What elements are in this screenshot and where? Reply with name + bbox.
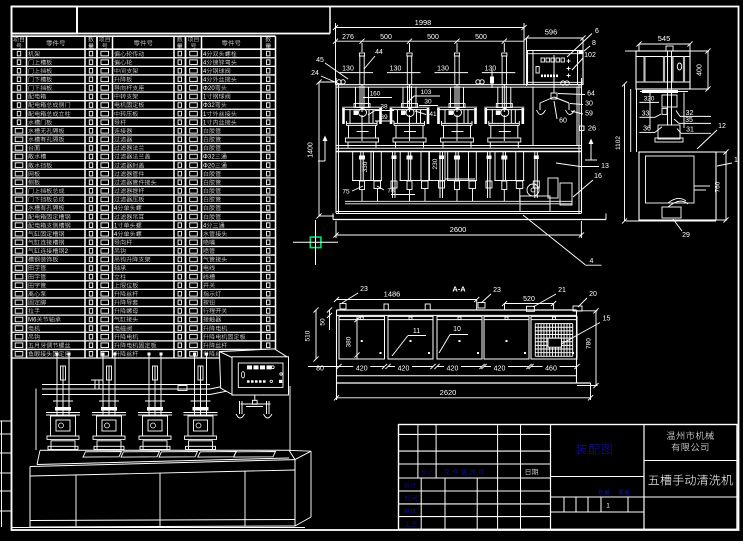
svg-text:59: 59 xyxy=(585,111,593,118)
svg-text:64: 64 xyxy=(587,91,595,98)
svg-text:780: 780 xyxy=(586,338,593,349)
svg-text:103: 103 xyxy=(421,89,432,96)
svg-text:2600: 2600 xyxy=(450,225,467,234)
svg-text:460: 460 xyxy=(545,366,557,373)
svg-text:校阅: 校阅 xyxy=(405,493,418,503)
svg-text:重量: 重量 xyxy=(618,488,630,497)
svg-text:量: 量 xyxy=(265,41,271,50)
svg-text:24: 24 xyxy=(311,70,319,77)
svg-text:标记: 标记 xyxy=(421,467,433,476)
svg-text:230: 230 xyxy=(432,158,439,169)
svg-text:78: 78 xyxy=(387,188,395,195)
svg-text:320: 320 xyxy=(644,96,655,103)
svg-text:号: 号 xyxy=(16,41,22,50)
svg-text:号: 号 xyxy=(102,41,108,50)
svg-text:33: 33 xyxy=(642,111,650,118)
svg-text:330: 330 xyxy=(362,161,369,172)
svg-text:80: 80 xyxy=(316,366,324,373)
svg-text:审核: 审核 xyxy=(404,506,418,516)
svg-text:23: 23 xyxy=(493,287,501,294)
svg-text:号: 号 xyxy=(190,41,196,50)
svg-text:545: 545 xyxy=(658,34,671,43)
svg-text:38: 38 xyxy=(380,104,388,111)
svg-text:31: 31 xyxy=(686,127,694,134)
svg-text:23: 23 xyxy=(360,286,368,293)
svg-text:五槽手动清洗机: 五槽手动清洗机 xyxy=(648,472,733,489)
svg-text:420: 420 xyxy=(494,366,506,373)
svg-text:2620: 2620 xyxy=(440,388,457,397)
svg-text:500: 500 xyxy=(380,34,392,41)
svg-text:零件号: 零件号 xyxy=(46,38,66,48)
svg-text:A-A: A-A xyxy=(452,285,466,294)
svg-text:鱼眼接头固定座: 鱼眼接头固定座 xyxy=(28,349,71,358)
svg-text:420: 420 xyxy=(447,366,459,373)
svg-text:500: 500 xyxy=(427,34,439,41)
svg-text:130: 130 xyxy=(342,66,354,73)
svg-text:500: 500 xyxy=(475,34,487,41)
svg-text:276: 276 xyxy=(342,34,354,41)
svg-text:15: 15 xyxy=(603,316,611,323)
svg-text:数量: 数量 xyxy=(598,488,610,497)
svg-text:升降丝杆: 升降丝杆 xyxy=(114,349,138,358)
svg-text:4: 4 xyxy=(590,258,594,265)
svg-text:130: 130 xyxy=(437,66,449,73)
svg-text:1: 1 xyxy=(734,157,738,164)
svg-text:26: 26 xyxy=(588,124,596,133)
svg-text:50: 50 xyxy=(320,318,327,326)
svg-text:420: 420 xyxy=(398,366,410,373)
svg-text:760: 760 xyxy=(715,181,722,192)
svg-text:102: 102 xyxy=(584,52,596,59)
svg-text:130: 130 xyxy=(484,66,496,73)
svg-text:10: 10 xyxy=(453,326,461,333)
svg-text:零件号: 零件号 xyxy=(134,38,154,48)
svg-text:596: 596 xyxy=(545,28,558,37)
svg-text:8: 8 xyxy=(592,40,596,47)
svg-text:44: 44 xyxy=(375,49,383,56)
svg-text:45: 45 xyxy=(316,57,324,64)
svg-text:39: 39 xyxy=(380,114,388,121)
svg-text:36: 36 xyxy=(643,126,651,133)
svg-text:11: 11 xyxy=(413,328,420,335)
svg-text:420: 420 xyxy=(356,366,368,373)
svg-text:量: 量 xyxy=(177,41,183,50)
svg-text:30: 30 xyxy=(585,101,593,108)
svg-text:20: 20 xyxy=(589,291,597,298)
svg-text:零件号: 零件号 xyxy=(222,38,242,48)
svg-text:21: 21 xyxy=(558,287,566,294)
svg-text:1102: 1102 xyxy=(615,136,622,150)
svg-text:75: 75 xyxy=(342,189,350,196)
svg-text:29: 29 xyxy=(682,232,690,239)
svg-text:日期: 日期 xyxy=(525,468,539,478)
svg-text:1998: 1998 xyxy=(415,18,432,27)
svg-text:130: 130 xyxy=(390,66,402,73)
svg-text:160: 160 xyxy=(370,91,381,98)
svg-text:41: 41 xyxy=(429,111,437,118)
svg-text:工艺: 工艺 xyxy=(405,519,418,529)
svg-text:量: 量 xyxy=(88,41,94,50)
svg-text:1400: 1400 xyxy=(308,142,315,158)
svg-text:13: 13 xyxy=(601,163,609,170)
svg-text:520: 520 xyxy=(523,296,535,303)
svg-text:1: 1 xyxy=(606,503,610,510)
svg-text:文件更改号: 文件更改号 xyxy=(444,468,487,478)
svg-text:400: 400 xyxy=(697,64,704,76)
svg-text:16: 16 xyxy=(594,173,602,180)
svg-text:510: 510 xyxy=(305,330,312,341)
svg-text:装配图: 装配图 xyxy=(575,441,614,458)
svg-text:30: 30 xyxy=(424,99,432,106)
svg-text:有限公司: 有限公司 xyxy=(671,440,710,454)
svg-text:1486: 1486 xyxy=(384,290,401,299)
svg-text:380: 380 xyxy=(346,336,353,347)
svg-text:12: 12 xyxy=(718,123,726,130)
svg-text:6: 6 xyxy=(595,28,599,35)
svg-text:60: 60 xyxy=(559,118,567,125)
svg-text:设计: 设计 xyxy=(404,480,418,490)
